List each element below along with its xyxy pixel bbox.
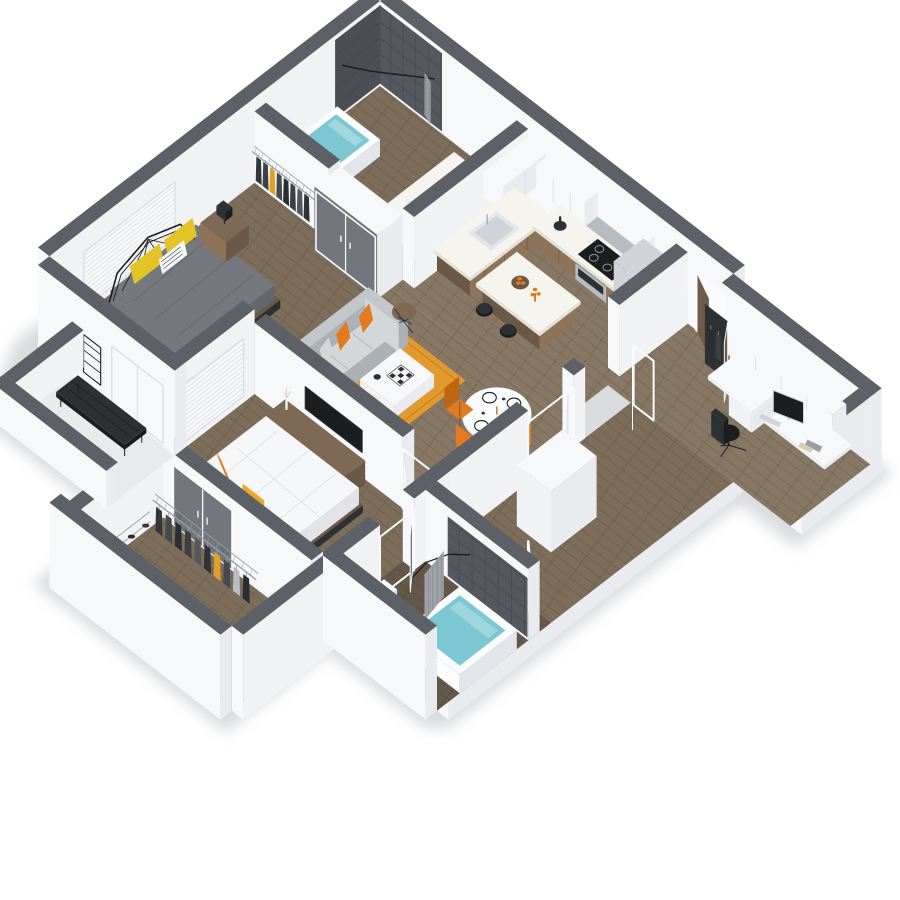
apartment-3d-floorplan <box>0 0 900 900</box>
floorplan-stage <box>0 0 900 900</box>
